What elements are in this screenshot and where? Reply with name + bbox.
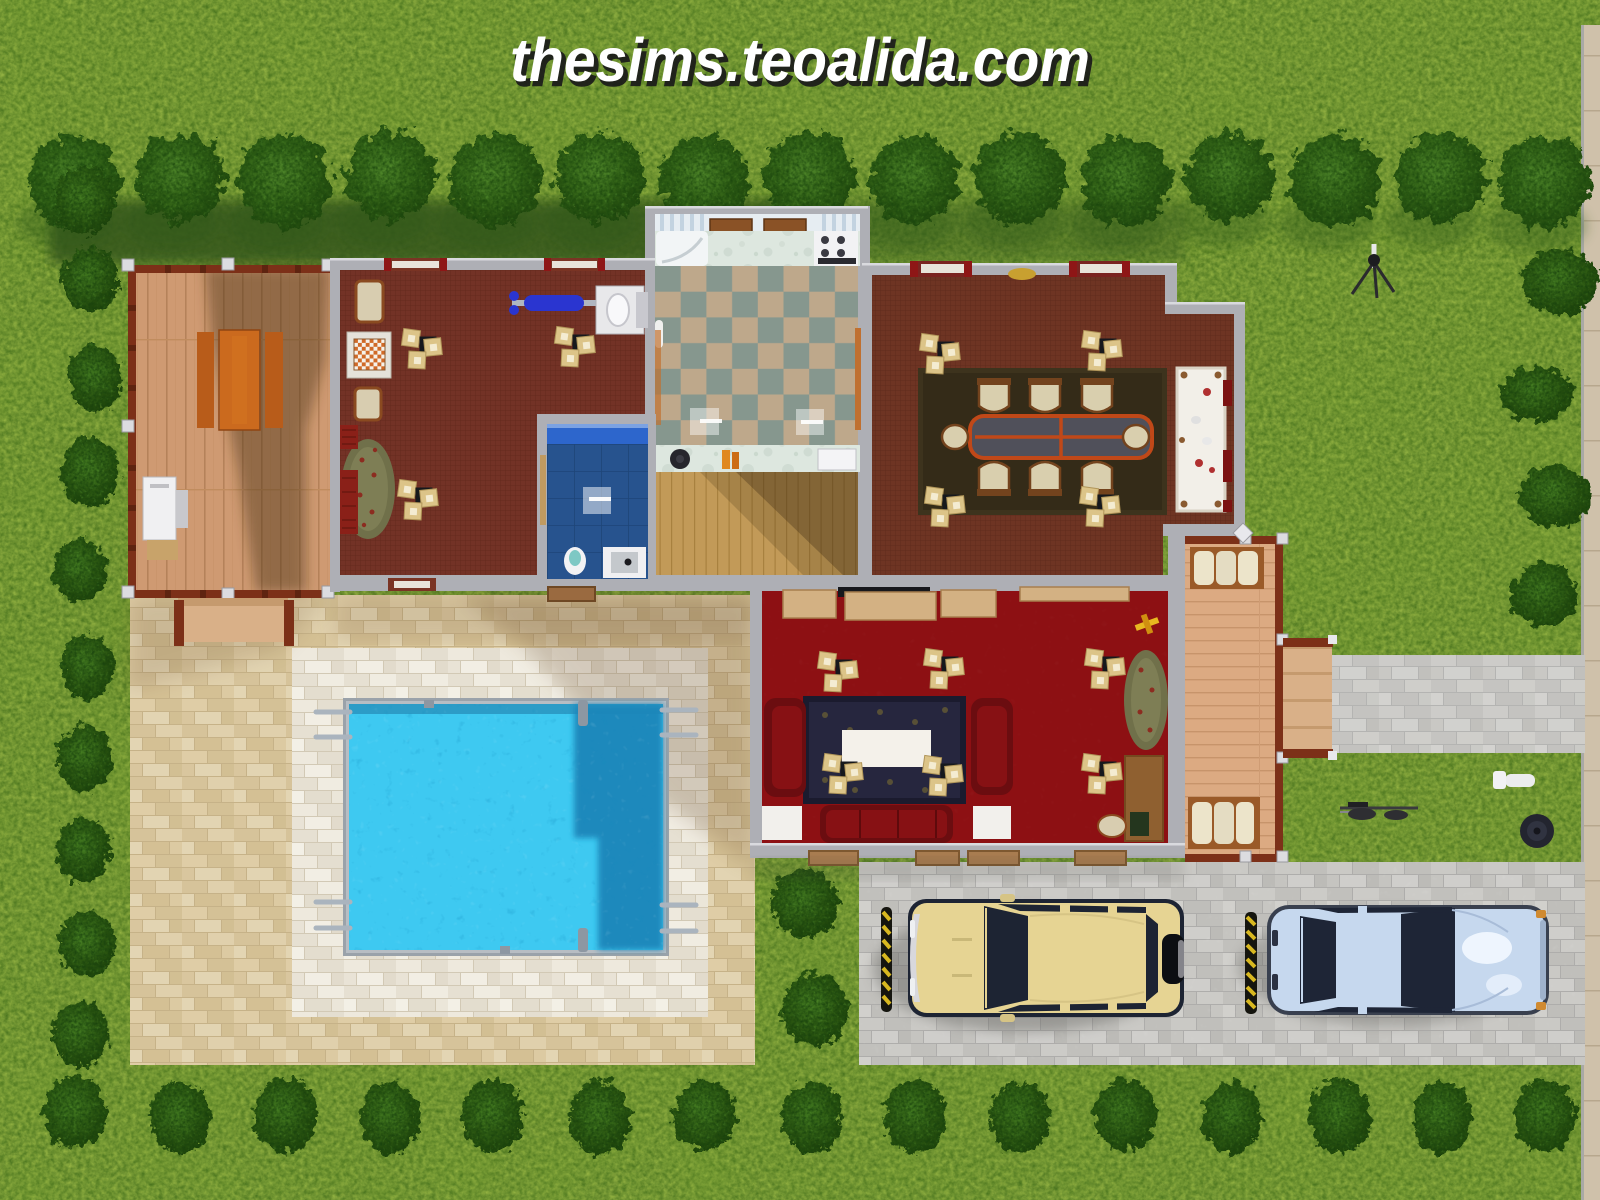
svg-text:thesims.teoalida.com: thesims.teoalida.com (510, 26, 1090, 94)
